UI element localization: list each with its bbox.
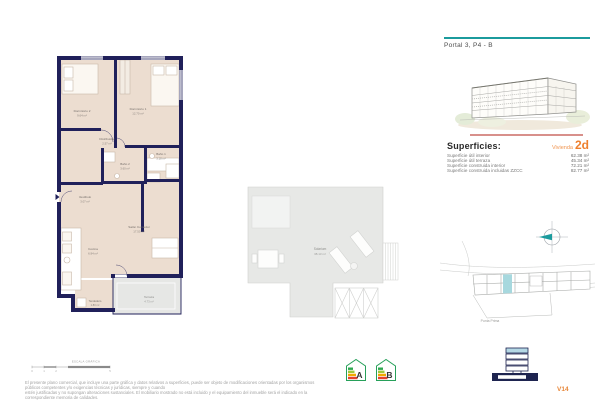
header-rule <box>444 37 590 39</box>
energy-letter-b: B <box>386 370 392 380</box>
site-label: Punta Prima <box>481 319 500 323</box>
scale-tick-0: 0 <box>31 370 33 373</box>
shower-bano1 <box>166 164 179 178</box>
room-bano2-area: 3.60 m² <box>120 167 130 171</box>
room-terraza-name: Terraza <box>144 295 154 299</box>
room-distribuidor-name: Distribuidor <box>99 137 114 141</box>
room-salon-area: 17.50 m² <box>133 230 144 234</box>
room-vestibulo-name: Vestíbulo <box>79 195 92 199</box>
site-building <box>473 271 590 295</box>
site-boundary <box>473 293 552 318</box>
accent-rule <box>470 134 583 136</box>
room-dormitorio1-area: 12.70 m² <box>132 112 143 116</box>
room-dormitorio2-area: 9.64 m² <box>77 114 87 118</box>
plan-sheet: Dormitorio 2 9.64 m² Dormitorio 1 12.70 … <box>0 0 600 400</box>
row-value: 82.77 m² <box>571 169 589 174</box>
floorplan-drawing: Dormitorio 2 9.64 m² Dormitorio 1 12.70 … <box>55 52 185 332</box>
site-plan: Punta Prima <box>440 213 600 335</box>
disclaimer-line2: estén justificadas y no supongan alterac… <box>25 391 318 400</box>
pergola-grid <box>335 288 378 318</box>
disclaimer: El presente plano comercial, que incluye… <box>25 381 318 400</box>
room-dormitorio2-name: Dormitorio 2 <box>74 109 91 113</box>
version-tag: V14 <box>557 386 569 393</box>
room-bano1-name: Baño 1 <box>156 152 166 156</box>
superficies-table: Superficie útil interior 62.38 m² Superf… <box>447 154 589 174</box>
superficies-panel: Superficies: Vivienda 2d Superficie útil… <box>447 140 589 174</box>
room-vestibulo-area: 3.07 m² <box>80 200 90 204</box>
vivienda-label: Vivienda <box>552 145 573 151</box>
room-distribuidor-area: 2.57 m² <box>102 142 112 146</box>
scale-label: ESCALA GRÁFICA <box>72 360 100 364</box>
room-terraza-area: 4.73 m² <box>144 300 154 304</box>
solarium-drawing: Solarium 38.13 m² <box>240 180 400 320</box>
outdoor-table <box>258 250 278 268</box>
room-cocina-area: 6.94 m² <box>88 252 98 256</box>
graphic-scale: ESCALA GRÁFICA 0 1 2 5 <box>28 357 116 373</box>
scale-tick-2: 2 <box>55 370 57 373</box>
compass-icon <box>536 221 568 253</box>
solarium-name: Solarium <box>314 247 327 251</box>
superficies-heading: Superficies: <box>447 141 501 151</box>
room-bano1-area: 3.18 m² <box>156 157 166 161</box>
energy-letter-a: A <box>356 370 362 380</box>
building-illustration <box>450 70 595 132</box>
scale-tick-3: 5 <box>109 370 111 373</box>
shower-bano2 <box>103 152 115 162</box>
solarium-label: Solarium 38.13 m² <box>314 247 327 256</box>
scale-numbers: 0 1 2 5 <box>31 370 111 373</box>
scale-tick-1: 1 <box>43 370 45 373</box>
room-salon-name: Salón Comedor <box>128 225 150 229</box>
roof-opening <box>252 196 290 228</box>
room-bano2-name: Baño 2 <box>120 162 130 166</box>
stair-rail <box>383 243 398 280</box>
row-label: Superficie construida incluidas ZZCC <box>447 169 523 174</box>
energy-house-a-icon: A <box>347 360 366 381</box>
energy-house-b-icon: B <box>377 360 396 381</box>
portal-title: Portal 3, P4 - B <box>444 42 493 49</box>
site-unit-highlight <box>503 274 512 293</box>
solarium-area: 38.13 m² <box>314 252 326 256</box>
entry-arrow-icon <box>56 194 60 200</box>
room-tendedero-area: 1.80 m² <box>91 303 100 307</box>
developer-logo-icon <box>490 346 542 382</box>
energy-ratings: A B <box>344 357 400 383</box>
room-cocina-name: Cocina <box>88 247 98 251</box>
room-dormitorio1-name: Dormitorio 1 <box>130 107 147 111</box>
room-tendedero-name: Tendedero <box>89 299 102 303</box>
vivienda-type: 2d <box>575 140 589 150</box>
superficies-row: Superficie construida incluidas ZZCC 82.… <box>447 169 589 174</box>
vivienda-badge: Vivienda 2d <box>552 140 589 151</box>
washer <box>77 298 86 307</box>
